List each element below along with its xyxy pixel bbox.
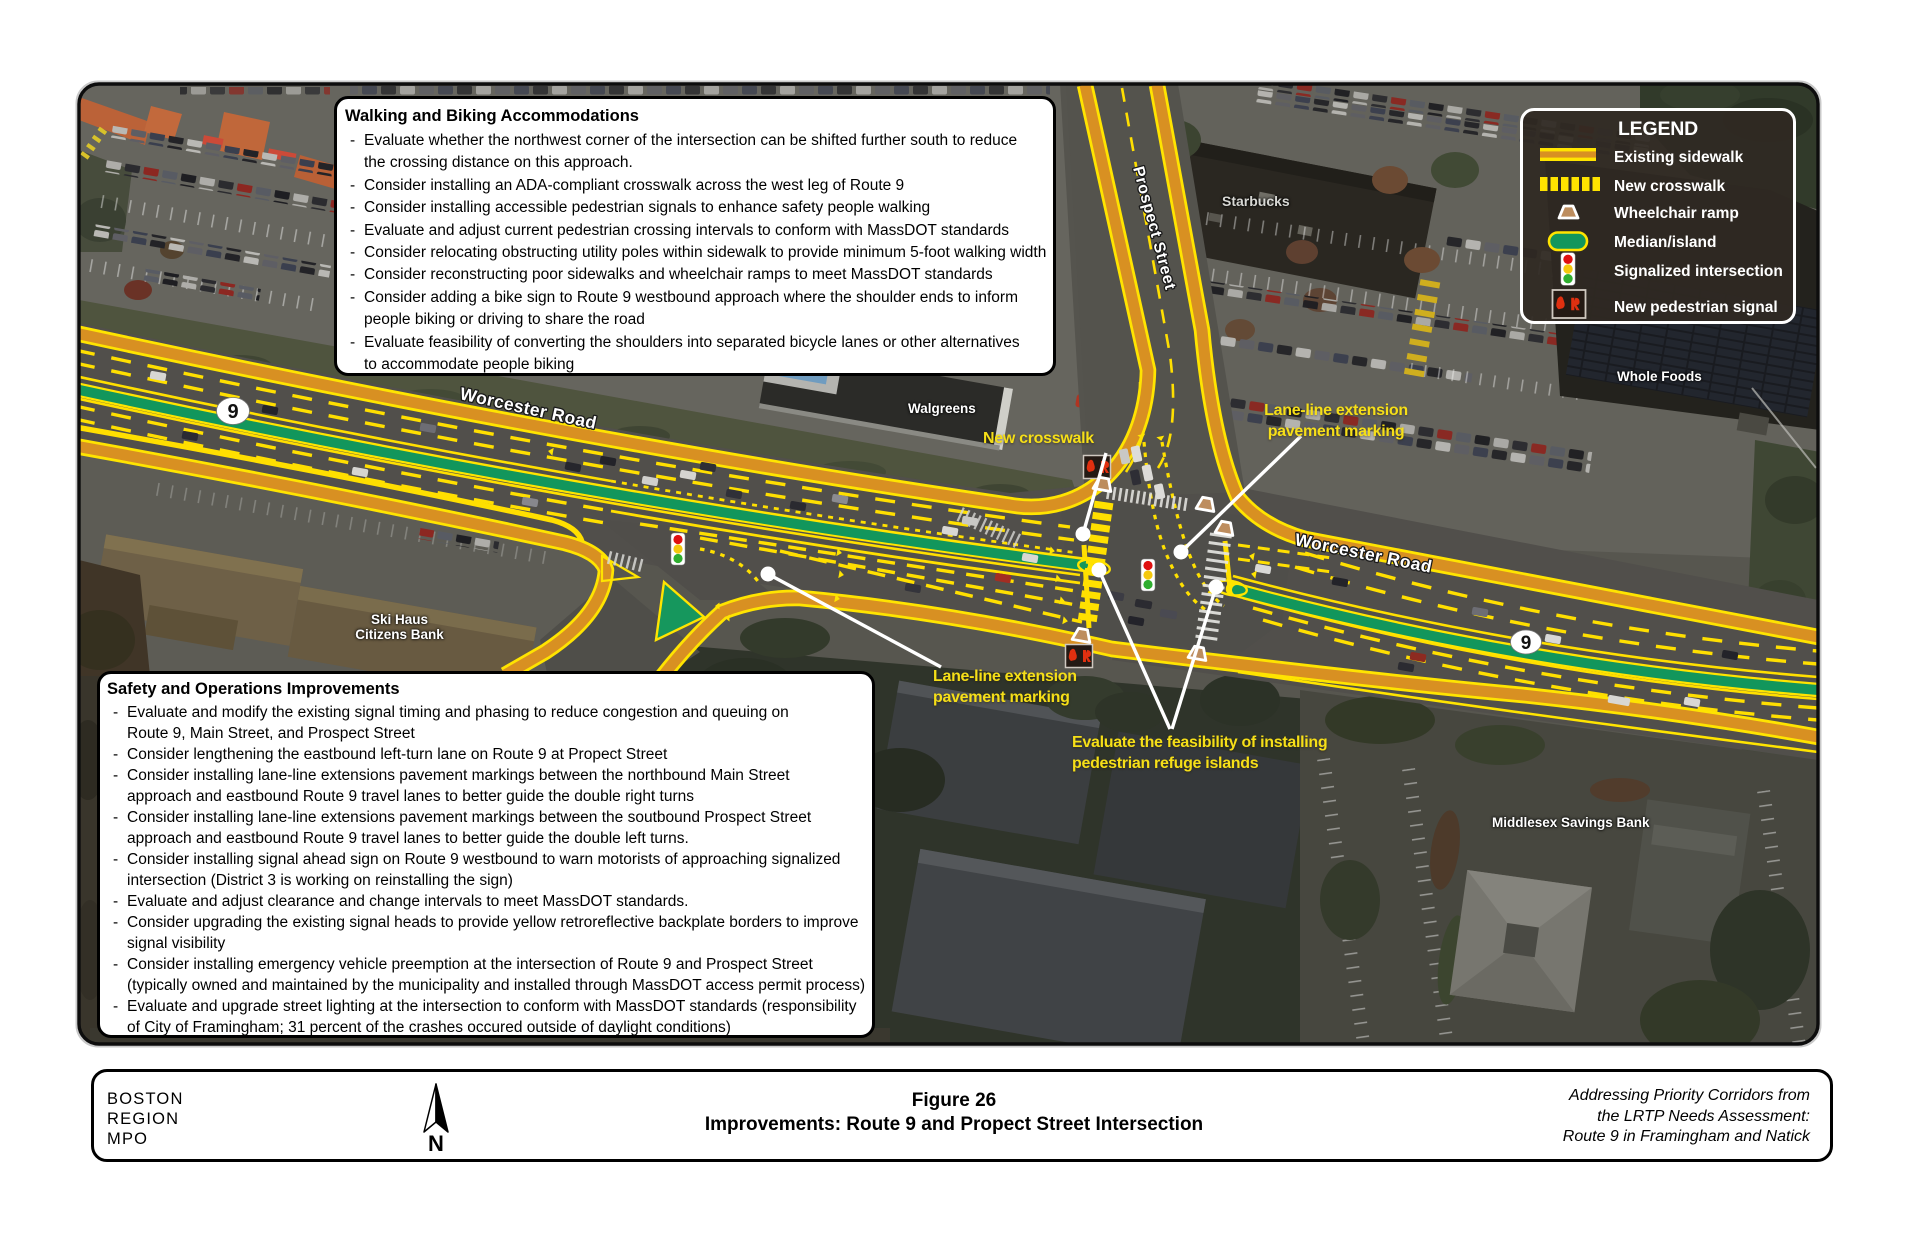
svg-text:9: 9: [227, 401, 238, 423]
svg-text:9: 9: [1521, 633, 1532, 654]
